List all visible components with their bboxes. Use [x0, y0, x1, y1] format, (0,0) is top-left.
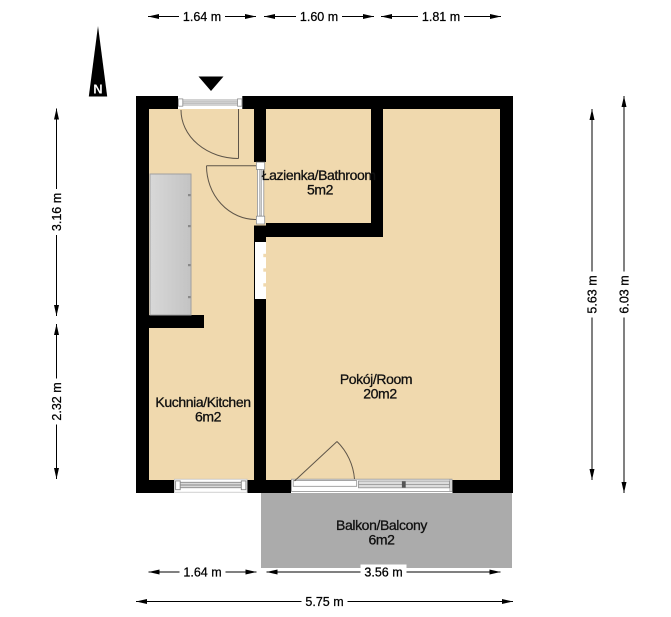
- svg-text:2.32 m: 2.32 m: [50, 382, 64, 420]
- svg-text:6m2: 6m2: [368, 532, 395, 548]
- svg-text:1.64 m: 1.64 m: [183, 566, 221, 580]
- svg-text:1.64 m: 1.64 m: [183, 10, 221, 24]
- svg-text:5.75 m: 5.75 m: [305, 595, 343, 609]
- svg-text:6.03 m: 6.03 m: [618, 275, 632, 313]
- svg-text:6m2: 6m2: [195, 409, 222, 425]
- svg-text:3.16 m: 3.16 m: [50, 193, 64, 231]
- svg-text:1.60 m: 1.60 m: [300, 10, 338, 24]
- svg-text:1.81 m: 1.81 m: [422, 10, 460, 24]
- svg-text:20m2: 20m2: [363, 386, 397, 402]
- svg-text:N: N: [93, 82, 102, 97]
- svg-text:5m2: 5m2: [307, 182, 334, 198]
- svg-text:3.56 m: 3.56 m: [364, 566, 402, 580]
- svg-text:5.63 m: 5.63 m: [586, 275, 600, 313]
